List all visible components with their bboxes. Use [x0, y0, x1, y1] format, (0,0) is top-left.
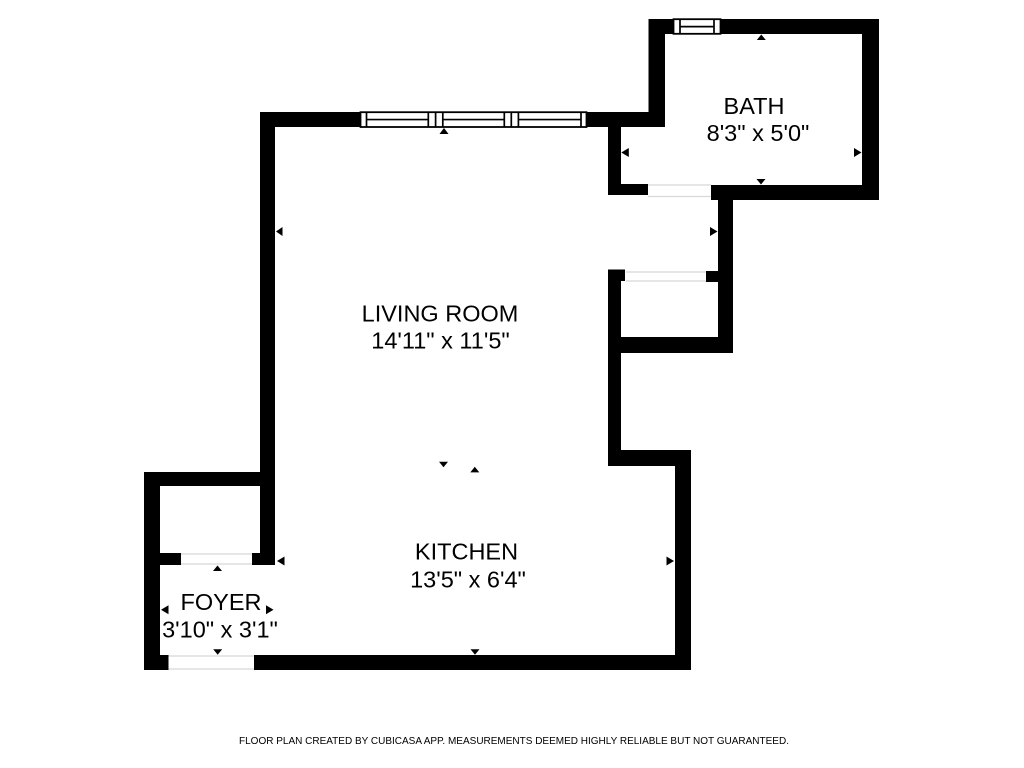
svg-text:13'5" x 6'4": 13'5" x 6'4"	[410, 567, 526, 593]
svg-text:LIVING ROOM: LIVING ROOM	[362, 301, 519, 327]
svg-text:3'10" x 3'1": 3'10" x 3'1"	[162, 616, 278, 642]
svg-text:BATH: BATH	[724, 93, 785, 119]
svg-text:FOYER: FOYER	[181, 589, 262, 615]
svg-text:FLOOR PLAN CREATED BY CUBICASA: FLOOR PLAN CREATED BY CUBICASA APP. MEAS…	[239, 736, 789, 747]
svg-text:14'11" x 11'5": 14'11" x 11'5"	[371, 328, 509, 354]
svg-text:8'3" x 5'0": 8'3" x 5'0"	[707, 120, 810, 146]
svg-text:KITCHEN: KITCHEN	[415, 539, 518, 565]
